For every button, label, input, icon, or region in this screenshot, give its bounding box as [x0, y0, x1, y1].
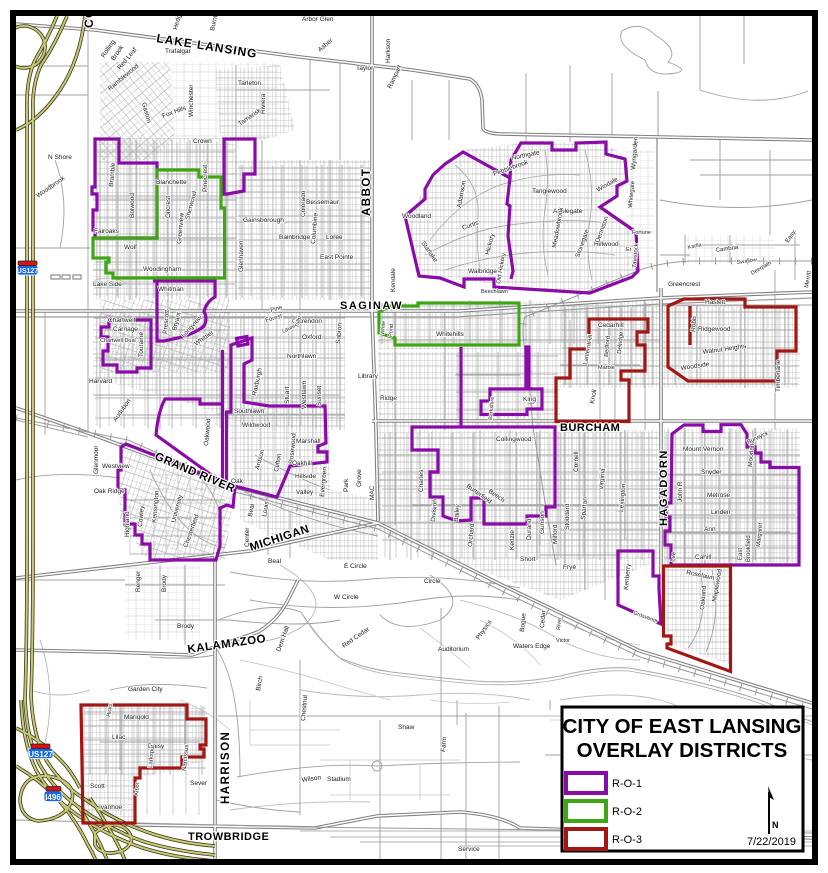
svg-text:Charles: Charles [418, 469, 425, 492]
svg-text:East: East [738, 548, 744, 560]
svg-text:Pond: Pond [388, 324, 395, 337]
svg-text:Westview: Westview [102, 463, 130, 470]
svg-text:Fairoaks: Fairoaks [94, 228, 120, 235]
svg-text:Sunset: Sunset [316, 386, 323, 406]
svg-text:Tanglewood: Tanglewood [532, 188, 567, 195]
svg-text:Stadium: Stadium [327, 776, 351, 783]
svg-text:Ridgewood: Ridgewood [698, 326, 731, 333]
svg-text:Marigold: Marigold [124, 714, 149, 721]
svg-text:River: River [556, 617, 563, 630]
svg-text:Kedzie: Kedzie [509, 530, 516, 550]
svg-text:White: White [380, 321, 387, 336]
svg-text:Oak: Oak [231, 478, 244, 485]
svg-text:Garden City: Garden City [128, 686, 163, 693]
svg-text:Stuart: Stuart [284, 386, 291, 404]
svg-text:Harvard: Harvard [89, 378, 113, 385]
svg-text:Durand: Durand [526, 518, 533, 540]
svg-text:MAC: MAC [369, 485, 376, 500]
svg-text:TROWBRIDGE: TROWBRIDGE [188, 831, 269, 843]
svg-text:Timberlane: Timberlane [775, 359, 782, 392]
svg-text:Lake Side: Lake Side [93, 281, 122, 288]
svg-text:Scott: Scott [90, 783, 105, 790]
svg-text:Crown: Crown [193, 138, 212, 145]
svg-text:Waters Edge: Waters Edge [513, 643, 551, 650]
svg-text:Chartwell Dual: Chartwell Dual [100, 338, 136, 344]
svg-text:Lilac: Lilac [112, 734, 126, 741]
svg-text:Frye: Frye [563, 564, 576, 571]
svg-text:Haslett: Haslett [705, 299, 725, 306]
svg-text:ABBOT: ABBOT [361, 168, 373, 216]
svg-text:Westlawn: Westlawn [301, 381, 308, 409]
svg-text:King: King [523, 396, 536, 403]
svg-text:Wildwood: Wildwood [242, 422, 271, 429]
svg-text:Bessemaur: Bessemaur [306, 199, 340, 206]
svg-text:John R: John R [677, 481, 684, 502]
svg-text:Grove: Grove [356, 469, 363, 487]
svg-text:Brody: Brody [161, 574, 168, 592]
svg-text:Kendale: Kendale [390, 268, 397, 292]
svg-text:Beechlawn: Beechlawn [481, 289, 508, 295]
svg-text:Walbridge: Walbridge [468, 268, 497, 275]
svg-text:Arbor: Arbor [134, 782, 141, 796]
svg-text:Northlawn: Northlawn [287, 353, 317, 360]
svg-text:Southlawn: Southlawn [234, 408, 265, 415]
svg-text:Ridge: Ridge [380, 395, 397, 402]
svg-text:Whitehills: Whitehills [436, 331, 465, 338]
svg-text:US127: US127 [28, 750, 53, 759]
svg-text:R-O-1: R-O-1 [612, 778, 642, 790]
svg-text:Bainbridge: Bainbridge [279, 234, 310, 241]
svg-text:N: N [772, 820, 779, 830]
svg-text:Arbor Glen: Arbor Glen [302, 16, 334, 23]
svg-text:Oak Ridge: Oak Ridge [94, 488, 125, 495]
svg-text:Touraine: Touraine [138, 332, 145, 357]
svg-text:Beal: Beal [268, 558, 282, 565]
svg-text:Marshall: Marshall [296, 438, 321, 445]
svg-text:Victor: Victor [556, 638, 570, 644]
svg-text:7/22/2019: 7/22/2019 [747, 836, 796, 848]
svg-text:SAGINAW: SAGINAW [340, 300, 403, 312]
svg-text:Circle: Circle [424, 578, 441, 585]
svg-text:CITY OF EAST LANSING: CITY OF EAST LANSING [563, 715, 802, 738]
svg-text:East Pointe: East Pointe [320, 254, 354, 261]
svg-text:Milford: Milford [552, 524, 559, 544]
svg-text:R-O-2: R-O-2 [612, 806, 642, 818]
svg-text:Valley: Valley [296, 489, 314, 496]
svg-text:Woodingham: Woodingham [143, 266, 181, 273]
svg-text:Greencrest: Greencrest [668, 281, 700, 288]
svg-text:Center: Center [244, 527, 251, 547]
svg-text:Park: Park [343, 478, 350, 492]
svg-text:Er: Er [626, 247, 632, 253]
svg-text:Mount Vernon: Mount Vernon [683, 446, 724, 453]
svg-text:HAGADORN: HAGADORN [658, 449, 670, 526]
svg-text:Snyder: Snyder [701, 469, 722, 476]
svg-text:Cornell: Cornell [573, 451, 580, 472]
svg-text:Harkson: Harkson [385, 38, 392, 63]
svg-text:Melrose: Melrose [707, 492, 731, 499]
svg-text:Ann: Ann [704, 526, 716, 533]
svg-text:Chartwell: Chartwell [108, 317, 136, 324]
svg-text:Blanchette: Blanchette [156, 179, 187, 186]
svg-text:Stoddard: Stoddard [564, 503, 571, 530]
svg-text:Gilcrest: Gilcrest [165, 196, 172, 218]
svg-text:Glenmoor: Glenmoor [93, 445, 100, 474]
svg-text:Loree: Loree [326, 234, 343, 241]
svg-text:Oxford: Oxford [302, 334, 322, 341]
svg-text:W Circle: W Circle [334, 594, 359, 601]
svg-text:OVERLAY DISTRICTS: OVERLAY DISTRICTS [577, 739, 788, 762]
svg-text:Cahill: Cahill [695, 554, 712, 561]
svg-text:Pinecrest: Pinecrest [202, 165, 209, 192]
svg-text:Carriage: Carriage [113, 326, 138, 333]
svg-text:Gainsborough: Gainsborough [243, 217, 284, 224]
svg-text:Hillside: Hillside [295, 473, 316, 480]
svg-text:E Circle: E Circle [344, 563, 367, 570]
svg-text:Brookfield: Brookfield [746, 535, 752, 562]
svg-text:Renger: Renger [135, 570, 142, 592]
svg-text:Whitman: Whitman [158, 286, 184, 293]
svg-text:Oakhill: Oakhill [292, 460, 312, 467]
svg-text:HARRISON: HARRISON [220, 731, 232, 804]
svg-text:Highland: Highland [124, 511, 131, 537]
svg-text:BURCHAM: BURCHAM [560, 422, 620, 434]
svg-text:Woodland: Woodland [402, 213, 432, 220]
svg-text:Winchester: Winchester [188, 84, 195, 117]
svg-text:US127: US127 [17, 268, 39, 275]
svg-text:Brody: Brody [177, 623, 195, 630]
svg-text:Shaw: Shaw [398, 724, 415, 731]
svg-text:Sever: Sever [190, 780, 208, 787]
svg-text:Service: Service [458, 846, 480, 853]
svg-text:Marble: Marble [598, 365, 615, 371]
svg-text:Glenhaven: Glenhaven [238, 240, 245, 272]
svg-text:Farm: Farm [440, 736, 448, 752]
svg-text:Short: Short [520, 556, 536, 563]
svg-text:Bolwood: Bolwood [129, 193, 136, 218]
svg-text:Wolf: Wolf [124, 244, 137, 251]
svg-text:Library: Library [358, 373, 379, 380]
svg-text:Trafalgar: Trafalgar [165, 48, 192, 55]
svg-text:Auditorium: Auditorium [438, 646, 469, 653]
svg-text:Gunson: Gunson [539, 511, 546, 534]
svg-text:Linden: Linden [711, 509, 731, 516]
svg-text:Taylor: Taylor [356, 65, 374, 72]
svg-text:Cedarhill: Cedarhill [598, 322, 624, 329]
svg-text:I496: I496 [45, 793, 61, 802]
svg-text:Collingwood: Collingwood [496, 436, 532, 443]
svg-text:Tarleton: Tarleton [238, 80, 262, 87]
svg-text:N Shore: N Shore [48, 154, 72, 161]
svg-text:R-O-3: R-O-3 [612, 834, 642, 846]
svg-text:Ivanhoe: Ivanhoe [99, 804, 123, 811]
svg-text:Fortune: Fortune [632, 230, 651, 236]
